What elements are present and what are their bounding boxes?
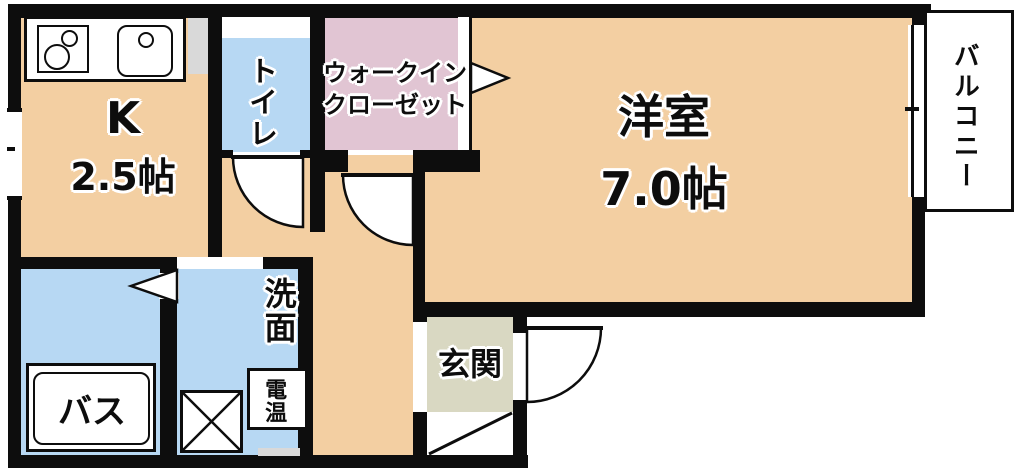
wall-kitchen-bottom-left (8, 257, 177, 269)
wall-entrance-right-bottom (513, 400, 527, 457)
walk-in-closet-label-line2: クローゼット (320, 93, 470, 118)
wall-bottom (8, 455, 528, 468)
hall-entrance-opening (413, 322, 427, 412)
wall-left (8, 4, 21, 468)
wall-kitchen-right (208, 4, 222, 257)
front-door-icon (527, 328, 601, 402)
toilet-window (222, 17, 310, 38)
washing-machine-pan-icon (180, 390, 243, 453)
faucet-icon (138, 32, 154, 48)
pipe-duct (188, 16, 208, 74)
sliding-window-rail-left (911, 25, 914, 197)
bath-label: バス (52, 395, 132, 431)
kitchen-size-label: 2.5帖 (43, 158, 203, 198)
entrance-label: 玄関 (433, 348, 507, 382)
wall-entrance-left-stub (413, 315, 427, 322)
kitchen-window-tick-middle (7, 147, 15, 151)
balcony-label: バルコニー (950, 32, 977, 202)
floor-plan: K 2.5帖 トイレ ウォークイン クローゼット 洋室 7.0帖 バルコニー 洗… (0, 0, 1024, 475)
sliding-window-handle (905, 107, 919, 111)
water-heater-label: 電温 (262, 376, 285, 426)
wall-closet-bottom-left (325, 150, 348, 172)
sliding-window-rail-right (924, 25, 927, 197)
wall-entrance-right-top (513, 317, 527, 333)
western-room-label: 洋室 (589, 93, 739, 141)
entrance-porch-box (427, 412, 513, 455)
toilet-label: トイレ (246, 46, 276, 158)
wall-bath-divider (160, 269, 177, 455)
stove-burner-small-icon (61, 30, 78, 47)
walk-in-closet-label-line1: ウォークイン (320, 61, 470, 86)
stove-burner-large-icon (44, 44, 70, 70)
western-room-size-label: 7.0帖 (584, 165, 744, 213)
western-room-floor (425, 18, 912, 302)
wall-toilet-stub-left (222, 150, 233, 158)
front-door-opening (513, 333, 527, 400)
wall-western-room-bottom (413, 302, 925, 317)
wall-entrance-left-bottom (413, 412, 427, 457)
kitchen-washroom-opening (177, 257, 263, 269)
wall-western-room-left (413, 167, 425, 317)
bottom-step-bar gray (258, 448, 300, 456)
kitchen-window (7, 108, 22, 200)
kitchen-window-tick-bottom (7, 196, 22, 200)
kitchen-label: K (93, 96, 153, 142)
washroom-label: 洗面 (261, 270, 295, 352)
kitchen-window-tick-top (7, 108, 22, 112)
wall-toilet-stub-right (300, 150, 310, 158)
